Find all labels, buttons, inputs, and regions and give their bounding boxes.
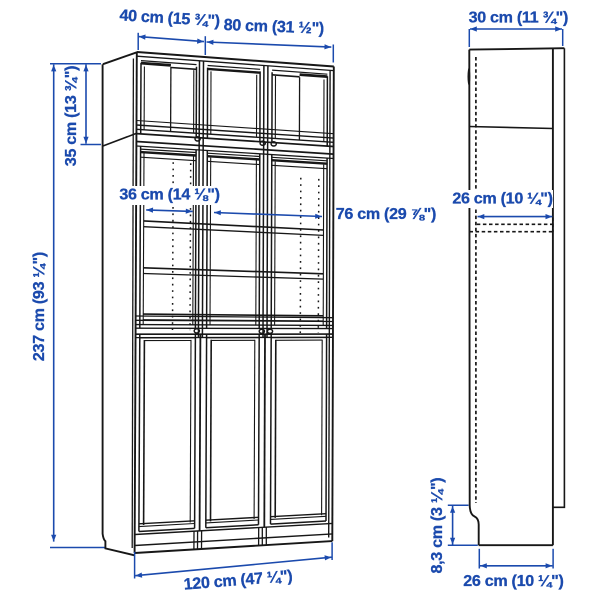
svg-text:237 cm (93 ¼"): 237 cm (93 ¼") [30,252,48,361]
svg-text:8,3 cm (3 ¼"): 8,3 cm (3 ¼") [428,478,446,574]
svg-text:30 cm (11 ¾"): 30 cm (11 ¾") [469,8,568,26]
svg-text:35 cm (13 ¾"): 35 cm (13 ¾") [62,66,80,166]
svg-text:76 cm (29 ⅞"): 76 cm (29 ⅞") [336,205,436,223]
svg-text:80 cm (31 ½"): 80 cm (31 ½") [223,16,324,38]
svg-text:26 cm (10 ¼"): 26 cm (10 ¼") [463,572,563,590]
svg-text:36 cm (14 ⅛"): 36 cm (14 ⅛") [119,185,219,203]
svg-text:26 cm (10 ¼"): 26 cm (10 ¼") [452,189,552,207]
